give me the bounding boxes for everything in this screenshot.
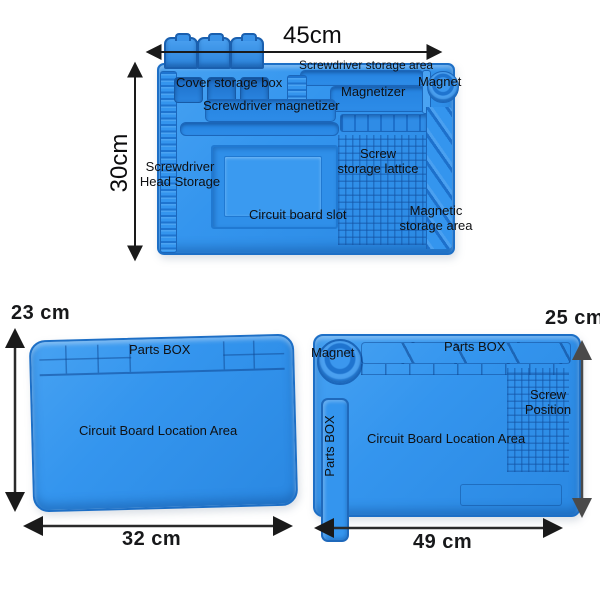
- dim-label-45cm: 45cm: [283, 22, 342, 50]
- label-magnetizer: Magnetizer: [341, 85, 405, 99]
- lid-tab: [241, 33, 257, 41]
- label-magnetic-storage-area: Magnetic storage area: [400, 203, 473, 233]
- dim-label-49cm: 49 cm: [413, 531, 472, 554]
- label-circuit-board-slot: Circuit board slot: [249, 208, 347, 222]
- long-tray: [180, 122, 339, 136]
- label-screw-storage-lattice: Screw storage lattice: [338, 146, 419, 176]
- label-line: Screwdriver: [146, 159, 215, 174]
- label-line: storage lattice: [338, 161, 419, 176]
- label-circuit-board-location-br: Circuit Board Location Area: [367, 432, 525, 446]
- cover-box-lid: [197, 37, 231, 69]
- label-parts-box-br-side: Parts BOX: [323, 415, 337, 476]
- dim-label-23cm: 23 cm: [11, 302, 70, 325]
- label-parts-box-bl: Parts BOX: [129, 343, 190, 357]
- label-line: Screw: [530, 387, 566, 402]
- label-screwdriver-storage-area: Screwdriver storage area: [299, 58, 433, 72]
- screw-position-grid: [507, 368, 569, 472]
- label-magnet-br: Magnet: [311, 346, 354, 360]
- recessed-area: [460, 484, 562, 506]
- label-screw-position: Screw Position: [525, 387, 571, 417]
- lid-tab: [208, 33, 224, 41]
- cover-box-lid: [164, 37, 198, 69]
- dim-label-32cm: 32 cm: [122, 528, 181, 551]
- label-line: Position: [525, 402, 571, 417]
- label-magnet-top: Magnet: [418, 75, 461, 89]
- cover-box-lid: [230, 37, 264, 69]
- label-screwdriver-head-storage: Screwdriver Head Storage: [140, 159, 220, 189]
- label-line: Head Storage: [140, 174, 220, 189]
- label-circuit-board-location-bl: Circuit Board Location Area: [79, 424, 237, 438]
- dim-label-30cm: 30cm: [106, 134, 134, 193]
- label-screwdriver-magnetizer: Screwdriver magnetizer: [203, 99, 340, 113]
- label-line: Screw: [360, 146, 396, 161]
- label-line: Magnetic: [410, 203, 463, 218]
- soldering-mat-product-diagram: 45cm 30cm 23 cm 32 cm 25 cm 49 cm Screwd…: [0, 0, 600, 600]
- label-line: storage area: [400, 218, 473, 233]
- mini-compartments: [340, 114, 428, 132]
- lid-tab: [175, 33, 191, 41]
- bottom-right-mat-49x25: [313, 334, 581, 517]
- label-parts-box-br-top: Parts BOX: [444, 340, 505, 354]
- dim-label-25cm: 25 cm: [545, 307, 600, 330]
- label-cover-storage-box: Cover storage box: [176, 76, 282, 90]
